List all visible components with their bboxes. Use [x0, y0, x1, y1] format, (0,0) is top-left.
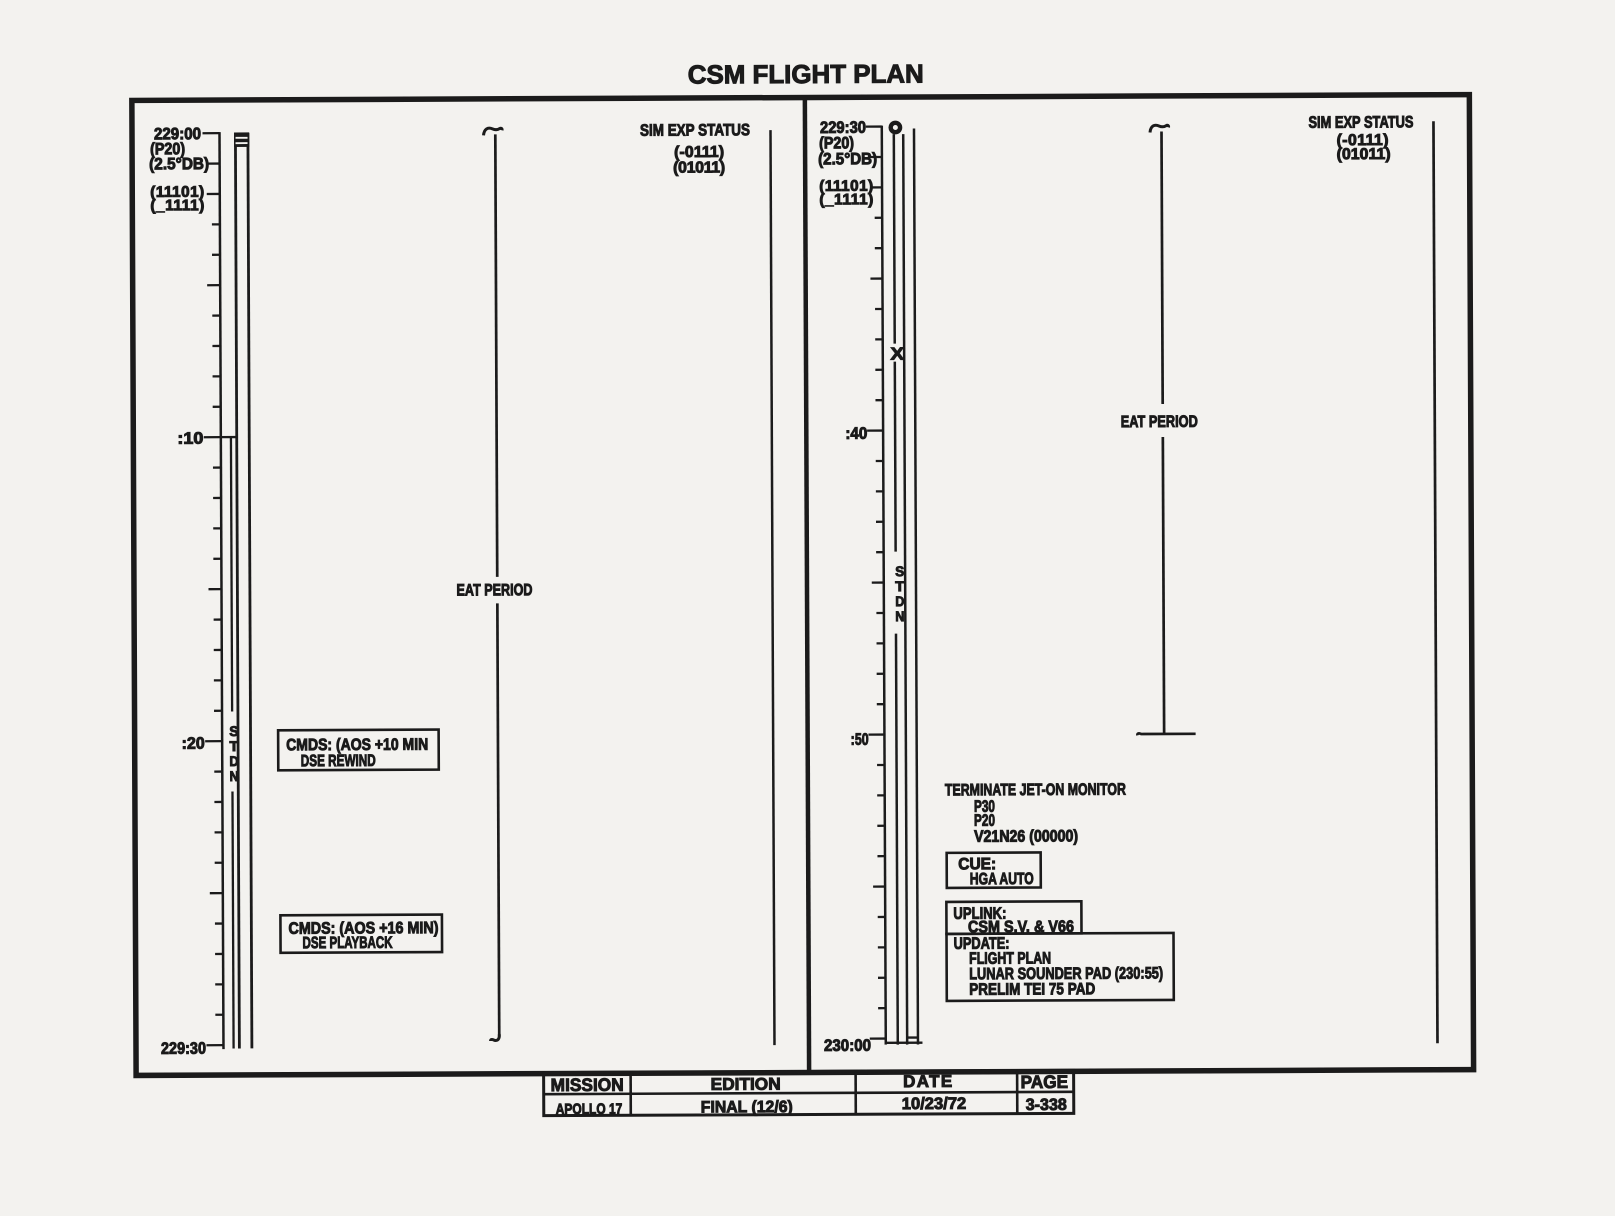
svg-text:EAT PERIOD: EAT PERIOD [1121, 413, 1198, 431]
svg-text:APOLLO 17: APOLLO 17 [556, 1101, 623, 1118]
svg-text:DSE REWIND: DSE REWIND [301, 752, 376, 770]
svg-text::50: :50 [851, 731, 869, 749]
svg-text:T: T [895, 578, 905, 594]
svg-text:(2.5°DB): (2.5°DB) [818, 150, 877, 168]
svg-text:FINAL (12/6): FINAL (12/6) [701, 1098, 793, 1116]
svg-text:(_1111): (_1111) [819, 191, 873, 208]
svg-text:DATE: DATE [903, 1072, 952, 1091]
svg-text:SIM EXP STATUS: SIM EXP STATUS [640, 121, 750, 139]
svg-text:T: T [229, 738, 239, 754]
svg-text:D: D [895, 593, 904, 609]
svg-text:X: X [890, 344, 904, 364]
svg-text:PRELIM TEI 75 PAD: PRELIM TEI 75 PAD [969, 980, 1095, 999]
svg-text:(01011): (01011) [673, 159, 725, 176]
svg-text:TERMINATE JET-ON MONITOR: TERMINATE JET-ON MONITOR [945, 781, 1126, 800]
svg-text:N: N [230, 768, 239, 784]
svg-text:D: D [230, 753, 239, 769]
svg-text:DSE PLAYBACK: DSE PLAYBACK [302, 934, 392, 952]
svg-text:CSM FLIGHT PLAN: CSM FLIGHT PLAN [688, 58, 924, 89]
svg-text:S: S [895, 563, 904, 579]
svg-text:230:00: 230:00 [824, 1037, 871, 1055]
svg-text:SIM EXP STATUS: SIM EXP STATUS [1308, 113, 1413, 131]
svg-text:229:30: 229:30 [161, 1040, 206, 1058]
svg-text::10: :10 [177, 430, 203, 448]
svg-text:EAT PERIOD: EAT PERIOD [456, 581, 532, 599]
svg-text:10/23/72: 10/23/72 [902, 1095, 967, 1113]
svg-text:(2.5°DB): (2.5°DB) [149, 155, 209, 173]
svg-text:PAGE: PAGE [1021, 1072, 1069, 1092]
svg-text:EDITION: EDITION [711, 1075, 781, 1094]
svg-text:V21N26 (00000): V21N26 (00000) [974, 827, 1078, 845]
svg-text:3-338: 3-338 [1026, 1096, 1067, 1114]
svg-text:(01011): (01011) [1337, 146, 1391, 163]
svg-text:MISSION: MISSION [551, 1075, 624, 1095]
svg-text:(_1111): (_1111) [150, 197, 204, 214]
svg-text:HGA AUTO: HGA AUTO [970, 870, 1034, 888]
svg-text:S: S [229, 723, 238, 739]
svg-text::40: :40 [845, 425, 867, 443]
svg-text:N: N [895, 608, 904, 624]
svg-text::20: :20 [182, 735, 205, 753]
